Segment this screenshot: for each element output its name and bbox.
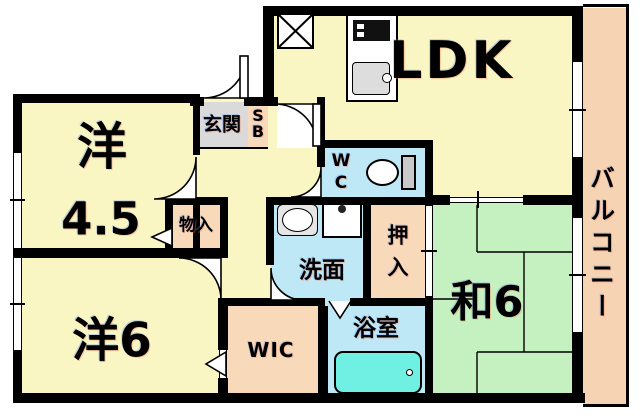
wall: [263, 6, 274, 106]
stove-burner: [357, 32, 364, 37]
wall: [13, 248, 228, 258]
label-washroom: 洗面: [299, 260, 345, 283]
label-japanese6: 和6: [451, 282, 524, 325]
window-tick: [569, 274, 586, 276]
wall: [218, 378, 228, 393]
label-western45-size: 4.5: [61, 197, 141, 242]
futon-closet-2: 入: [388, 252, 409, 284]
label-ldk: LDK: [389, 35, 515, 87]
wall: [317, 140, 433, 148]
refrigerator-space: [277, 13, 314, 49]
window-tick: [10, 303, 25, 305]
folding-door-wic: [219, 350, 227, 378]
stove-burner: [357, 24, 364, 29]
wall: [363, 205, 371, 298]
label-balcony: バルコニー: [589, 165, 614, 325]
balcony-rail: [583, 4, 629, 7]
toilet-icon: [366, 159, 399, 186]
window-tick: [10, 199, 25, 201]
sliding-door-ldk-japanese6: [450, 197, 523, 203]
wall: [317, 148, 325, 167]
sliding-door-tick: [477, 191, 479, 208]
label-entrance: 玄関: [203, 116, 241, 135]
wall: [13, 393, 585, 403]
entrance-step-line: [196, 147, 268, 149]
balcony-rail: [583, 404, 628, 407]
label-bathroom: 浴室: [353, 318, 399, 341]
balcony-rail: [626, 4, 629, 407]
wall: [425, 296, 433, 403]
wall: [218, 298, 325, 306]
washbasin-bowl: [282, 208, 313, 232]
wall: [220, 197, 228, 258]
wall: [165, 197, 228, 205]
window: [13, 153, 22, 248]
label-futon-closet: 押 入: [388, 221, 409, 284]
wall: [218, 300, 228, 350]
label-shoe-box: S B: [252, 108, 264, 140]
floorplan: LDK 洋 4.5 洋6 和6 バルコニー 玄関 S B W C 洗面 押 入 …: [0, 0, 640, 416]
wall: [266, 205, 274, 265]
label-wic: WIC: [247, 340, 294, 360]
wall: [13, 94, 200, 103]
wall: [572, 332, 583, 403]
shoe-box-b: B: [252, 124, 264, 140]
label-western45-kanji: 洋: [77, 122, 127, 172]
wall: [350, 298, 433, 306]
window-tick: [569, 109, 586, 111]
wc-w: W: [332, 150, 351, 172]
label-wc: W C: [332, 150, 351, 194]
wc-c: C: [332, 172, 351, 194]
futon-closet-1: 押: [388, 221, 409, 253]
front-door-arc: [204, 56, 246, 98]
wall: [165, 197, 173, 256]
bathtub-drain: [406, 369, 413, 376]
wall: [318, 306, 328, 393]
sliding-door-tick: [421, 250, 437, 252]
label-western6: 洋6: [72, 318, 152, 365]
wall: [244, 97, 278, 106]
toilet-tank: [401, 155, 416, 190]
wall: [433, 195, 450, 205]
wall: [572, 6, 583, 62]
label-storage: 物入: [179, 218, 213, 235]
wall: [572, 157, 583, 218]
ldk-door-zone: [277, 106, 317, 148]
front-door-leaf: [240, 56, 248, 98]
wall: [425, 140, 433, 206]
washer-drain: [338, 205, 346, 213]
